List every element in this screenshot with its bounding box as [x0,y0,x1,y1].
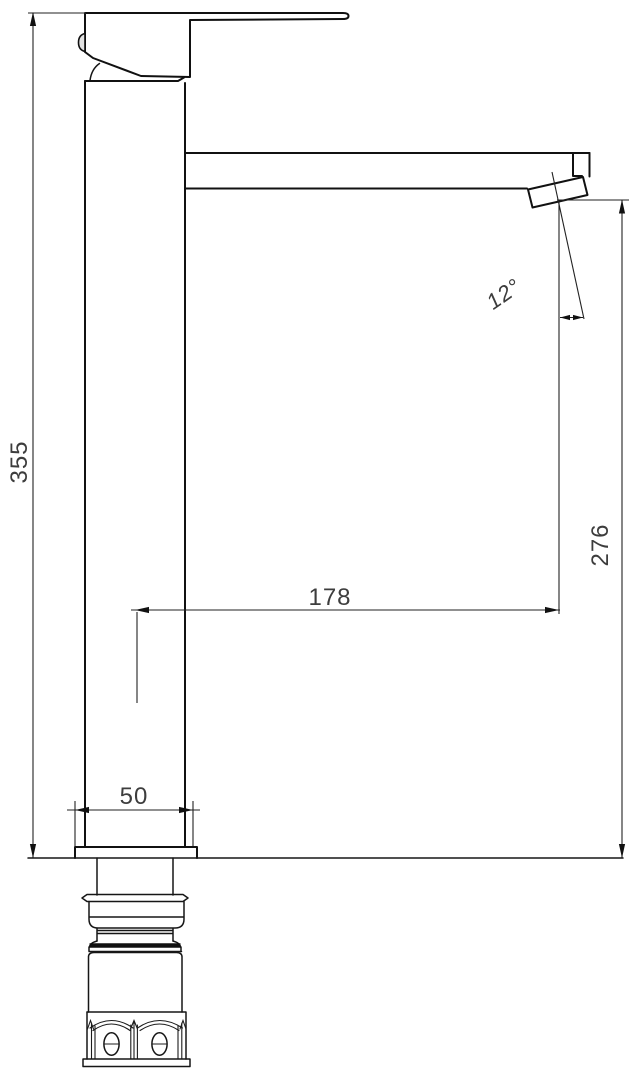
dimension-base-width: 50 [67,783,200,846]
dim-355-arrow-down [30,844,36,858]
angle-label: 12° [482,273,526,314]
seal-cup [89,902,184,929]
angle-arrow-right [573,315,583,320]
dim-276-label: 276 [587,523,614,566]
dimension-spout-projection: 178 [131,201,560,703]
under-counter-assembly [82,858,190,1067]
faucet-technical-drawing: 355 276 178 50 12° [0,0,632,1070]
handle-junction-arc [90,64,100,81]
faucet-handle [79,13,349,81]
dim-178-label: 178 [308,584,351,611]
dim-50-arrow-left [75,807,89,813]
dim-178-arrow-right [545,607,559,613]
faucet-body [85,78,185,848]
threaded-shank [97,858,173,895]
faucet-spout [185,153,590,208]
base-plate [75,847,197,858]
aerator-outlet [528,177,588,208]
dim-355-label: 355 [6,440,33,483]
neck-band [97,929,173,942]
body-top-edge [85,78,184,82]
nut-outer-sides [87,1012,186,1059]
drawing-canvas: 355 276 178 50 12° [0,0,632,1070]
lower-cylinder [89,953,183,1013]
handle-side-button [79,34,86,52]
spout-end-cap [573,153,590,177]
dim-276-arrow-up [619,200,625,214]
angle-arrow-left [560,315,570,320]
dim-276-arrow-down [619,844,625,858]
base-plate-outline [75,847,197,858]
dim-50-label: 50 [120,783,149,810]
washer [82,895,188,902]
nut-bottom-plate [83,1059,190,1067]
mounting-nut [83,1012,190,1067]
handle-lever-outline [85,13,349,77]
dimension-outlet-height: 276 [557,200,629,859]
dim-355-arrow-up [30,12,36,26]
dimension-overall-height: 355 [6,12,86,858]
